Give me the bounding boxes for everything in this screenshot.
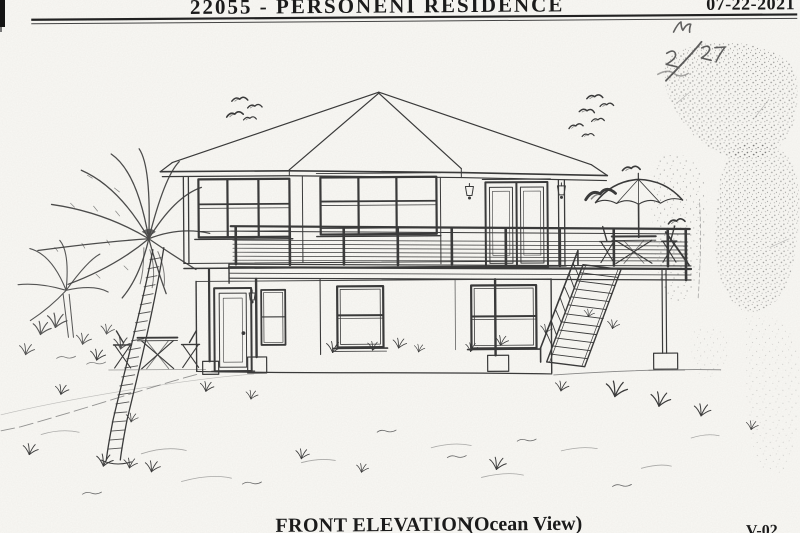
scanned-plan-sheet: 22055 - PERSONENI RESIDENCE 07-22-2021 F… <box>0 0 800 533</box>
elevation-drawing: 22055 - PERSONENI RESIDENCE 07-22-2021 F… <box>0 0 800 533</box>
footer-subtitle: (Ocean View) <box>467 513 582 533</box>
sheet-number: V-02 <box>746 522 778 533</box>
footer-title: FRONT ELEVATION <box>275 514 472 533</box>
door-knob <box>242 332 245 335</box>
header-date: 07-22-2021 <box>706 0 795 14</box>
french-doors <box>482 179 551 267</box>
